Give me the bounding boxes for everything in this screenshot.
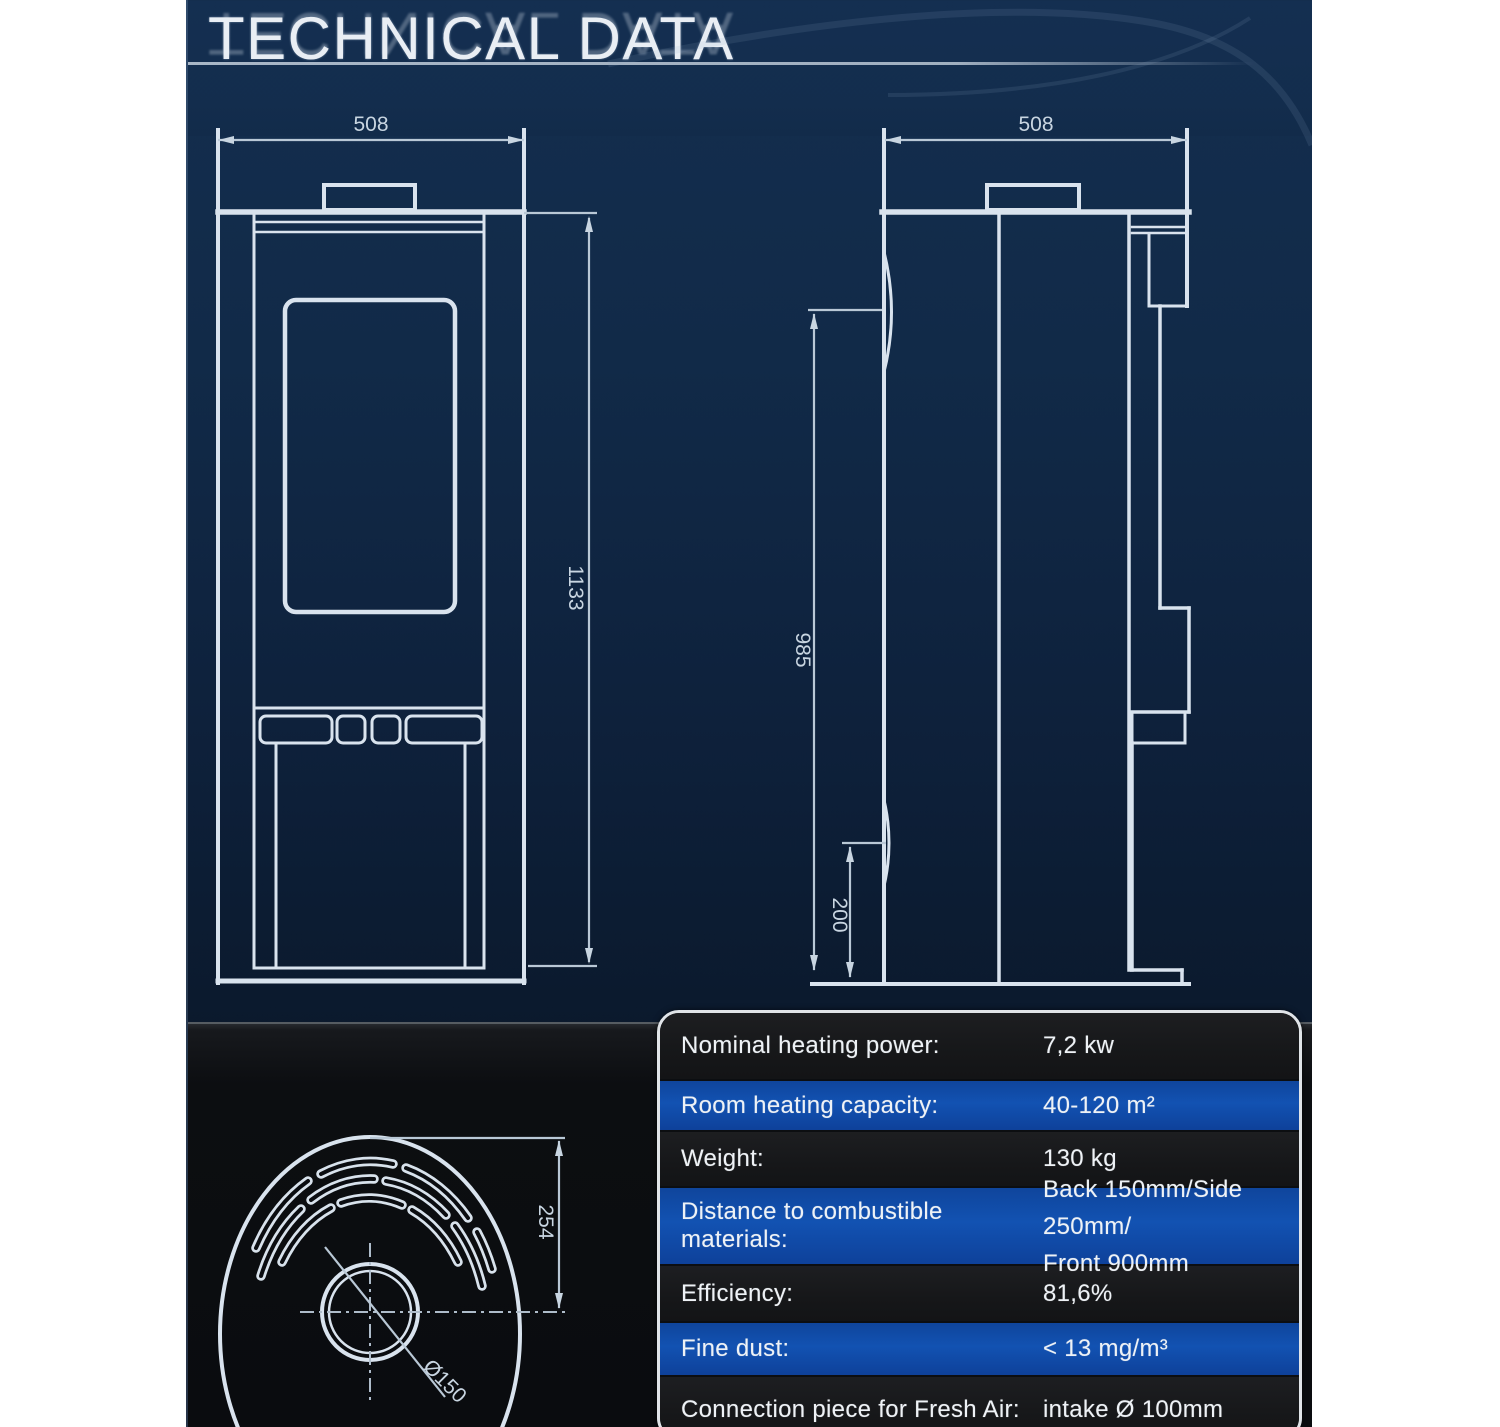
table-row: Fine dust: < 13 mg/m³ — [660, 1323, 1299, 1377]
flue-collar-front — [324, 185, 415, 210]
spec-label: Weight: — [660, 1145, 1043, 1173]
spec-label: Fine dust: — [660, 1335, 1043, 1363]
spec-label: Connection piece for Fresh Air: — [660, 1396, 1043, 1424]
spec-label: Room heating capacity: — [660, 1092, 1043, 1120]
side-view-drawing: 508 985 200 — [791, 113, 1189, 984]
spec-value: < 13 mg/m³ — [1043, 1335, 1299, 1363]
stove-window-front — [285, 300, 455, 612]
floor-clearance-dim-label: 200 — [828, 897, 851, 932]
spec-value: intake Ø 100mm — [1043, 1396, 1299, 1424]
table-row: Distance to combustible materials: Back … — [660, 1188, 1299, 1266]
spec-value-line1: Back 150mm/Side 250mm/ — [1043, 1171, 1293, 1245]
spec-label: Nominal heating power: — [660, 1032, 1043, 1060]
spec-value: 81,6% — [1043, 1280, 1299, 1308]
table-row: Nominal heating power: 7,2 kw — [660, 1013, 1299, 1081]
spec-value-line2: Front 900mm — [1043, 1245, 1293, 1282]
front-height-dim-label: 1133 — [564, 565, 587, 610]
datasheet-image: TECHNICAL DATA TECHNICAL DATA — [186, 0, 1312, 1427]
table-row: Room heating capacity: 40-120 m² — [660, 1081, 1299, 1132]
spec-label: Distance to combustible materials: — [660, 1198, 1043, 1254]
front-view-drawing: 508 1133 — [218, 113, 597, 983]
table-row: Connection piece for Fresh Air: intake Ø… — [660, 1377, 1299, 1427]
spec-table: Nominal heating power: 7,2 kw Room heati… — [657, 1010, 1302, 1427]
spec-value: Back 150mm/Side 250mm/Front 900mm — [1043, 1171, 1299, 1282]
side-height-dim-label: 985 — [791, 632, 814, 667]
spec-label: Efficiency: — [660, 1280, 1043, 1308]
spec-value: 40-120 m² — [1043, 1092, 1299, 1120]
reflection-fade-overlay — [188, 66, 1312, 136]
page-title: TECHNICAL DATA — [208, 4, 735, 73]
flue-collar-side — [987, 185, 1079, 210]
spec-value: 7,2 kw — [1043, 1032, 1299, 1060]
spec-value: 130 kg — [1043, 1145, 1299, 1173]
